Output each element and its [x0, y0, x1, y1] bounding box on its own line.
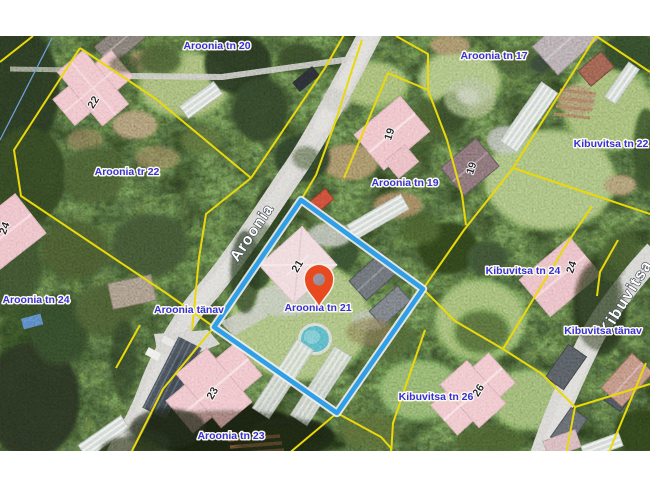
svg-text:Kibuvitsa tn 26: Kibuvitsa tn 26 [399, 391, 474, 403]
svg-text:Aroonia tn 23: Aroonia tn 23 [197, 430, 264, 442]
svg-text:Aroonia tn 19: Aroonia tn 19 [371, 177, 438, 189]
svg-text:Aroonia tänav: Aroonia tänav [154, 304, 224, 316]
svg-text:Aroonia tr 22: Aroonia tr 22 [95, 166, 160, 178]
svg-text:Aroonia tn 24: Aroonia tn 24 [2, 294, 69, 306]
svg-text:Kibuvitsa tn 24: Kibuvitsa tn 24 [486, 265, 561, 277]
svg-text:Kibuvitsa tänav: Kibuvitsa tänav [564, 325, 642, 337]
svg-text:Aroonia tn 17: Aroonia tn 17 [460, 50, 527, 62]
svg-text:Kibuvitsa tn 22: Kibuvitsa tn 22 [574, 138, 649, 150]
svg-text:Aroonia tn 20: Aroonia tn 20 [183, 40, 250, 52]
